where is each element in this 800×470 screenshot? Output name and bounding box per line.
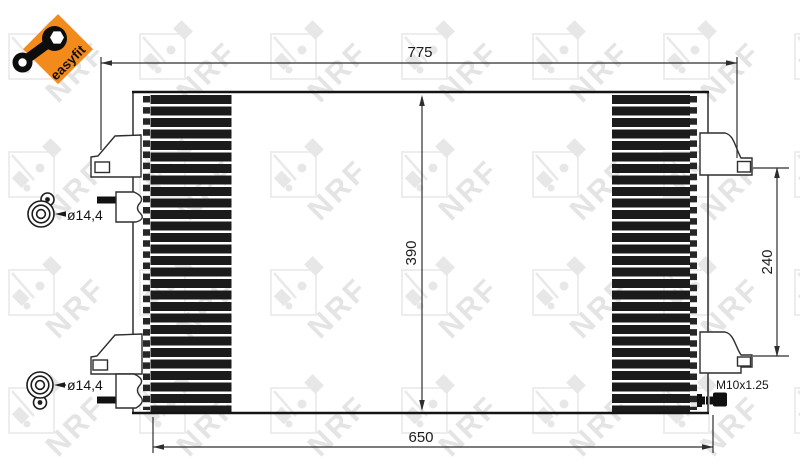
- label-sensor-thread: M10x1.25: [716, 378, 769, 392]
- condenser-drawing: NRF: [0, 0, 800, 470]
- label-port-bottom-diameter: ø14,4: [67, 377, 103, 393]
- port-top-left: [116, 192, 142, 222]
- bracket-bottom-right-tab: [738, 357, 751, 366]
- bracket-top-right-tab: [738, 162, 751, 173]
- dim-overall-width-label: 775: [407, 44, 432, 61]
- label-port-top-diameter: ø14,4: [67, 207, 103, 223]
- dim-core-height-label: 390: [403, 240, 420, 265]
- pipe-top-left: [97, 197, 117, 204]
- bracket-bottom-left-slot: [93, 360, 108, 370]
- bracket-top-left-slot: [95, 162, 110, 173]
- pipe-bottom-left: [97, 397, 117, 404]
- dim-bracket-spacing-label: 240: [759, 249, 776, 274]
- dim-core-width-label: 650: [408, 429, 433, 446]
